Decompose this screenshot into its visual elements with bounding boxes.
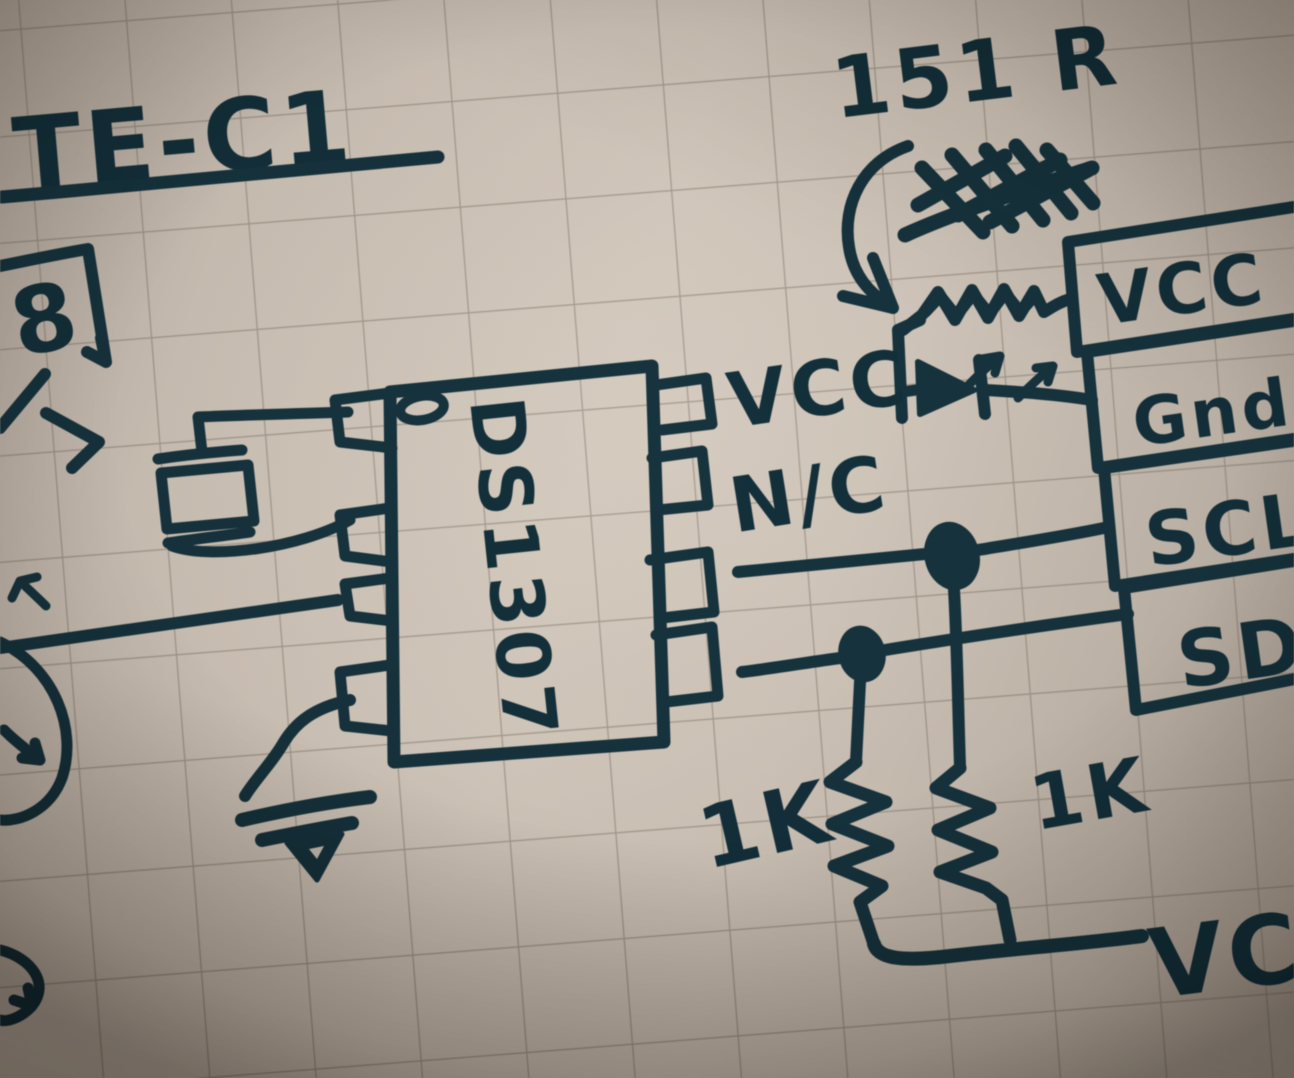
wire-scl-drop-to-resistor xyxy=(954,590,960,766)
wire-sda-drop-to-resistor xyxy=(856,682,860,762)
hand-drawn-schematic-photo: TE-C1 151 R VCC Gnd SCL SDA DS1307 VCC xyxy=(0,0,1294,1078)
schematic-drawing: TE-C1 151 R VCC Gnd SCL SDA DS1307 VCC xyxy=(0,0,1294,1078)
